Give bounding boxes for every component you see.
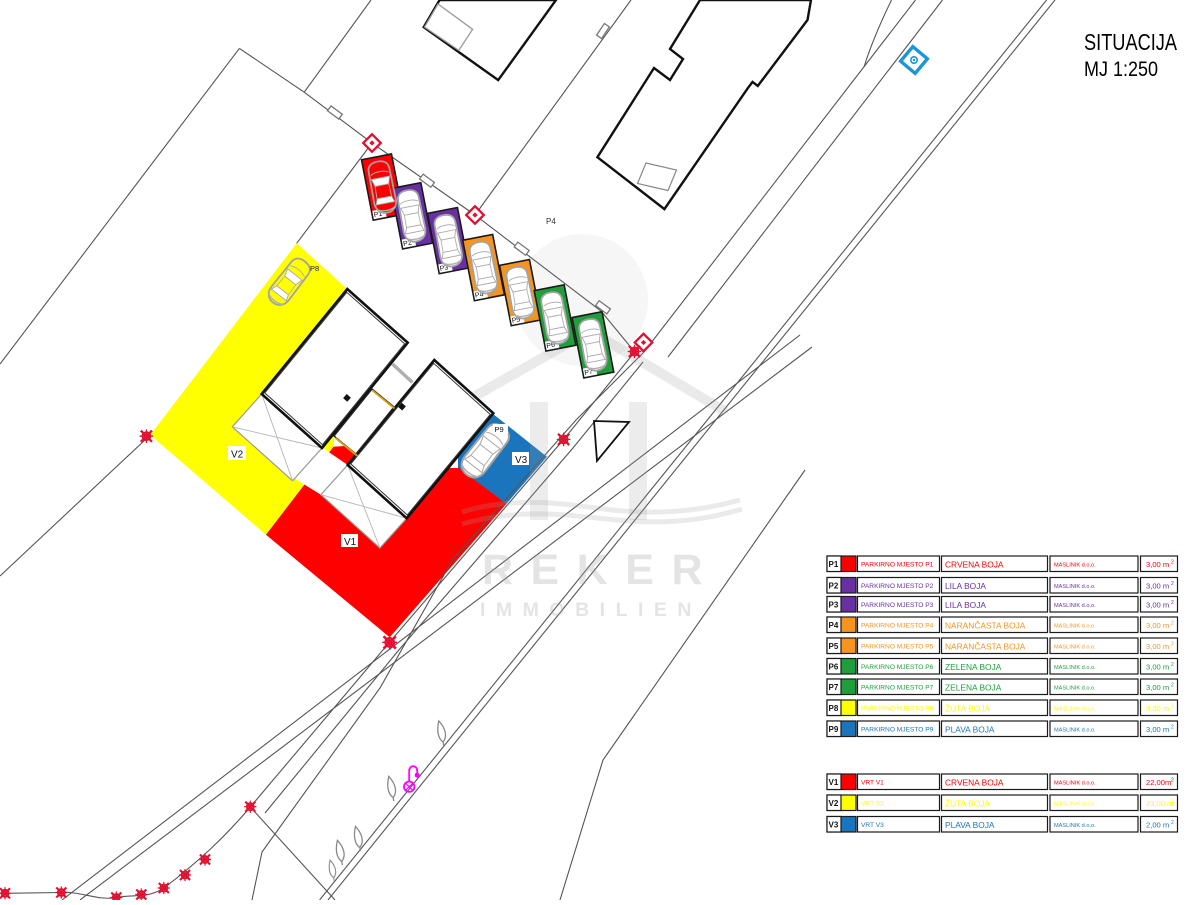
svg-text:2: 2 [1171,725,1174,731]
svg-text:IMMOBILIEN: IMMOBILIEN [480,599,702,621]
svg-text:PARKIRNO MJESTO P2: PARKIRNO MJESTO P2 [861,583,934,590]
svg-text:MASLINIK d.o.o.: MASLINIK d.o.o. [1054,563,1096,569]
svg-text:P3: P3 [829,601,839,610]
svg-text:P9: P9 [495,425,504,434]
svg-text:MASLINIK d.o.o.: MASLINIK d.o.o. [1054,728,1096,734]
svg-text:PARKIRNO MJESTO P6: PARKIRNO MJESTO P6 [861,664,934,671]
svg-text:P5: P5 [829,642,839,651]
svg-text:ZELENA BOJA: ZELENA BOJA [945,662,1002,672]
svg-text:ŽUTA BOJA: ŽUTA BOJA [945,799,990,809]
svg-text:MASLINIK d.o.o.: MASLINIK d.o.o. [1054,665,1096,671]
svg-text:3,00 m: 3,00 m [1146,725,1169,734]
svg-text:MASLINIK d.o.o.: MASLINIK d.o.o. [1054,823,1096,829]
svg-text:2: 2 [1171,683,1174,689]
svg-text:3,00 m: 3,00 m [1146,560,1169,569]
svg-text:2: 2 [1171,662,1174,668]
svg-text:22,00m: 22,00m [1146,778,1171,787]
svg-text:MASLINIK d.o.o.: MASLINIK d.o.o. [1054,645,1096,651]
svg-text:V2: V2 [231,450,244,461]
svg-text:2: 2 [1171,560,1174,566]
svg-text:MASLINIK d.o.o.: MASLINIK d.o.o. [1054,603,1096,609]
svg-text:V2: V2 [829,799,839,808]
svg-text:CRVENA BOJA: CRVENA BOJA [945,560,1004,570]
svg-text:P4: P4 [829,621,839,630]
svg-text:PLAVA BOJA: PLAVA BOJA [945,820,995,830]
svg-text:P1: P1 [829,560,839,569]
svg-text:LILA BOJA: LILA BOJA [945,600,986,610]
svg-text:V1: V1 [829,778,839,787]
svg-text:MASLINIK d.o.o.: MASLINIK d.o.o. [1054,802,1096,808]
svg-text:2,00 m: 2,00 m [1146,821,1169,830]
svg-text:PARKIRNO MJESTO P4: PARKIRNO MJESTO P4 [861,623,934,630]
svg-text:P8: P8 [829,704,839,713]
svg-text:NARANČASTA BOJA: NARANČASTA BOJA [945,642,1026,652]
svg-text:P4: P4 [546,217,556,226]
svg-text:VRT V2: VRT V2 [861,801,884,808]
svg-text:PARKIRNO MJESTO P1: PARKIRNO MJESTO P1 [861,562,934,569]
svg-text:PARKIRNO MJESTO P8: PARKIRNO MJESTO P8 [861,706,934,713]
svg-text:P9: P9 [829,725,839,734]
svg-text:P6: P6 [829,663,839,672]
svg-text:2: 2 [1171,704,1174,710]
svg-text:V1: V1 [344,537,357,548]
svg-text:MASLINIK d.o.o.: MASLINIK d.o.o. [1054,584,1096,590]
svg-text:ŽUTA BOJA: ŽUTA BOJA [945,704,990,714]
svg-text:3,00 m: 3,00 m [1146,601,1169,610]
svg-text:P8: P8 [310,264,319,273]
svg-text:2: 2 [1171,799,1174,805]
svg-text:2: 2 [1171,600,1174,606]
svg-text:3,00 m: 3,00 m [1146,704,1169,713]
svg-text:MASLINIK d.o.o.: MASLINIK d.o.o. [1054,686,1096,692]
svg-text:MJ 1:250: MJ 1:250 [1084,58,1158,81]
svg-text:REKER: REKER [482,546,720,594]
svg-text:3,00 m: 3,00 m [1146,642,1169,651]
svg-text:V3: V3 [829,821,839,830]
svg-text:VRT V3: VRT V3 [861,822,884,829]
svg-text:MASLINIK d.o.o.: MASLINIK d.o.o. [1054,707,1096,713]
svg-text:2: 2 [1171,581,1174,587]
svg-text:MASLINIK d.o.o.: MASLINIK d.o.o. [1054,781,1096,787]
svg-text:LILA BOJA: LILA BOJA [945,581,986,591]
svg-text:ZELENA BOJA: ZELENA BOJA [945,683,1002,693]
svg-text:2: 2 [1171,778,1174,784]
svg-text:V3: V3 [515,455,528,466]
svg-text:VRT V1: VRT V1 [861,780,884,787]
svg-text:3,00 m: 3,00 m [1146,621,1169,630]
svg-text:SITUACIJA: SITUACIJA [1084,29,1178,55]
svg-text:P7: P7 [829,683,839,692]
svg-text:CRVENA BOJA: CRVENA BOJA [945,778,1004,788]
svg-text:3,00 m: 3,00 m [1146,582,1169,591]
svg-text:PLAVA BOJA: PLAVA BOJA [945,725,995,735]
svg-text:2: 2 [1171,642,1174,648]
svg-text:3,00 m: 3,00 m [1146,683,1169,692]
svg-text:2: 2 [1171,621,1174,627]
svg-text:PARKIRNO MJESTO P5: PARKIRNO MJESTO P5 [861,644,934,651]
svg-text:3,00 m: 3,00 m [1146,663,1169,672]
svg-text:23,00 m: 23,00 m [1146,799,1173,808]
svg-text:MASLINIK d.o.o.: MASLINIK d.o.o. [1054,624,1096,630]
svg-text:PARKIRNO MJESTO P9: PARKIRNO MJESTO P9 [861,727,934,734]
svg-text:2: 2 [1171,820,1174,826]
svg-text:PARKIRNO MJESTO P3: PARKIRNO MJESTO P3 [861,602,934,609]
svg-text:PARKIRNO MJESTO P7: PARKIRNO MJESTO P7 [861,685,934,692]
svg-text:NARANČASTA BOJA: NARANČASTA BOJA [945,621,1026,631]
svg-text:P2: P2 [829,582,839,591]
